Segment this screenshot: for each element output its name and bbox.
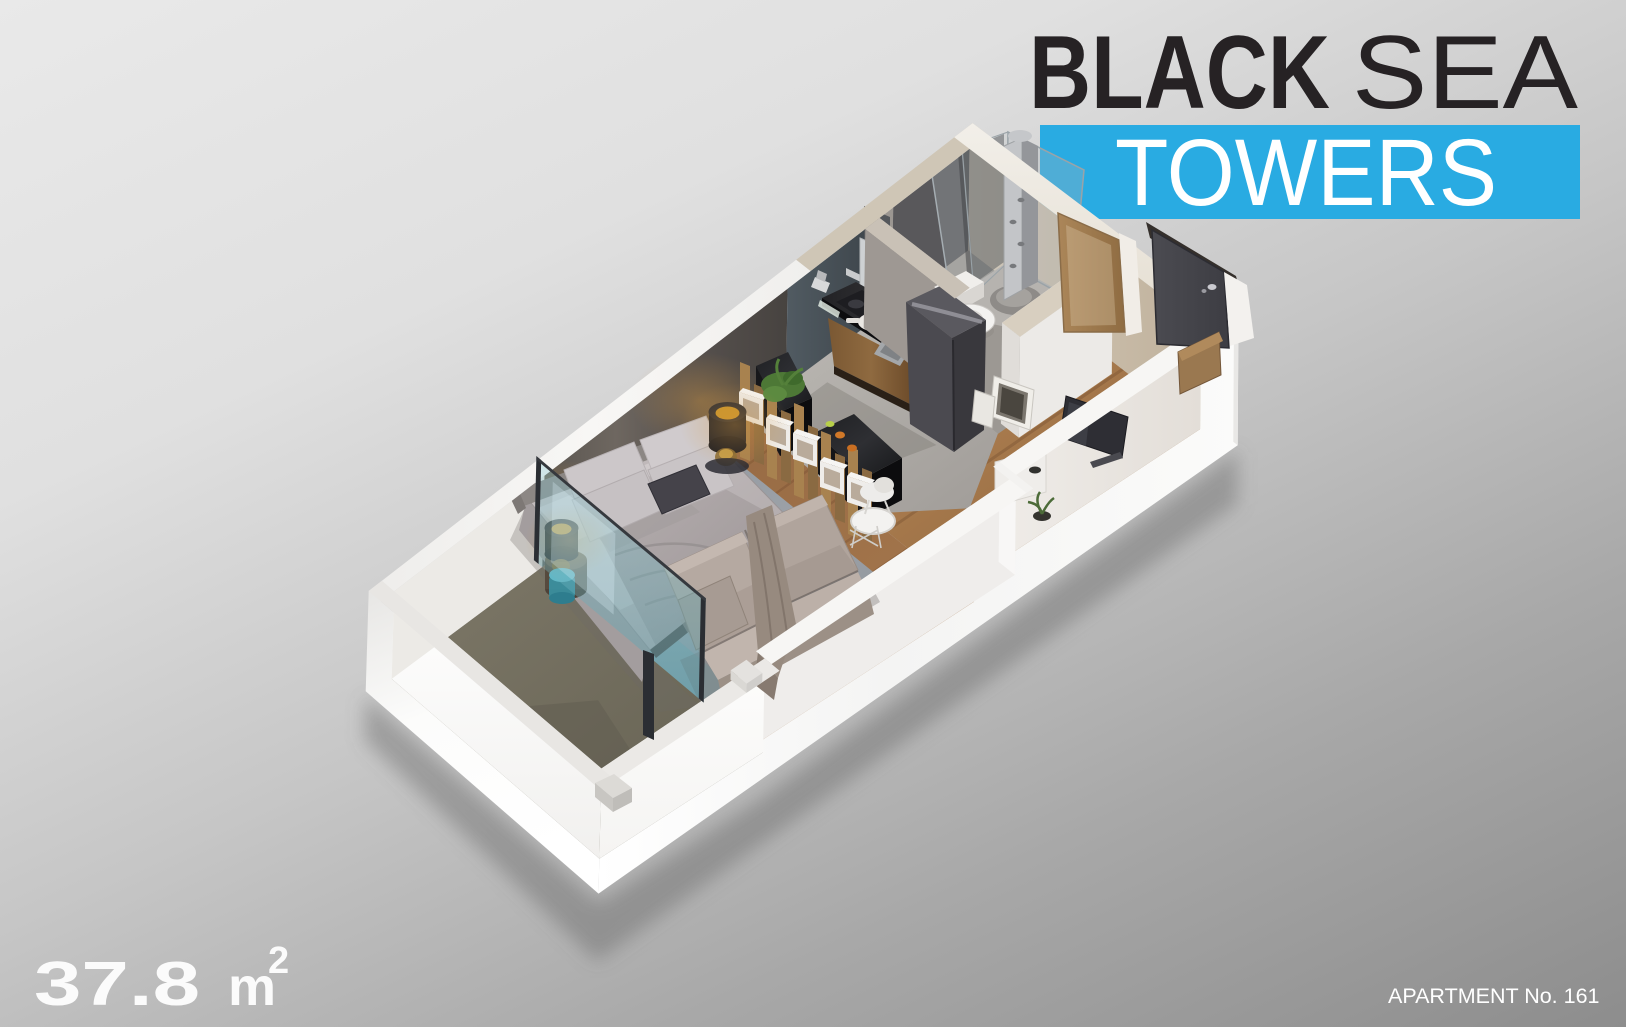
svg-text:APARTMENT No. 161: APARTMENT No. 161 xyxy=(1388,984,1600,1008)
svg-text:TOWERS: TOWERS xyxy=(1115,120,1497,226)
svg-text:37.8: 37.8 xyxy=(34,950,200,1019)
svg-text:2: 2 xyxy=(268,940,289,982)
svg-text:BLACK: BLACK xyxy=(1029,15,1330,131)
svg-text:SEA: SEA xyxy=(1352,15,1579,131)
